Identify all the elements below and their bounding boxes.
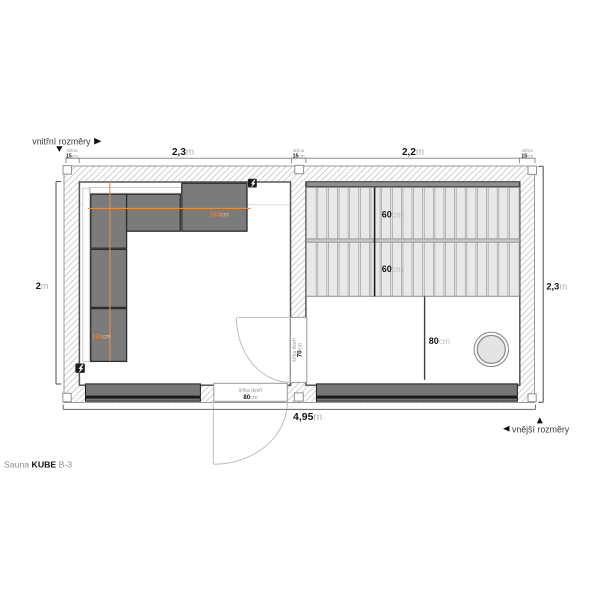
svg-text:vnější rozměry: vnější rozměry	[512, 424, 570, 434]
svg-text:vnitřní rozměry: vnitřní rozměry	[32, 136, 91, 146]
svg-text:80cm: 80cm	[243, 395, 257, 401]
svg-text:160cm: 160cm	[210, 211, 229, 218]
svg-text:60cm: 60cm	[382, 210, 403, 220]
svg-text:2,3m: 2,3m	[172, 147, 194, 158]
svg-text:2,2m: 2,2m	[402, 147, 424, 158]
svg-text:60cm: 60cm	[382, 264, 403, 274]
svg-text:2,3m: 2,3m	[546, 282, 567, 292]
svg-text:šířka dveří: šířka dveří	[239, 388, 263, 394]
svg-text:160cm: 160cm	[92, 334, 111, 341]
svg-text:4,95m: 4,95m	[293, 411, 322, 423]
svg-text:Sauna KUBE B-3: Sauna KUBE B-3	[4, 460, 72, 470]
svg-text:2m: 2m	[36, 281, 49, 291]
svg-text:70cm: 70cm	[298, 343, 304, 357]
svg-text:80cm: 80cm	[429, 336, 450, 346]
